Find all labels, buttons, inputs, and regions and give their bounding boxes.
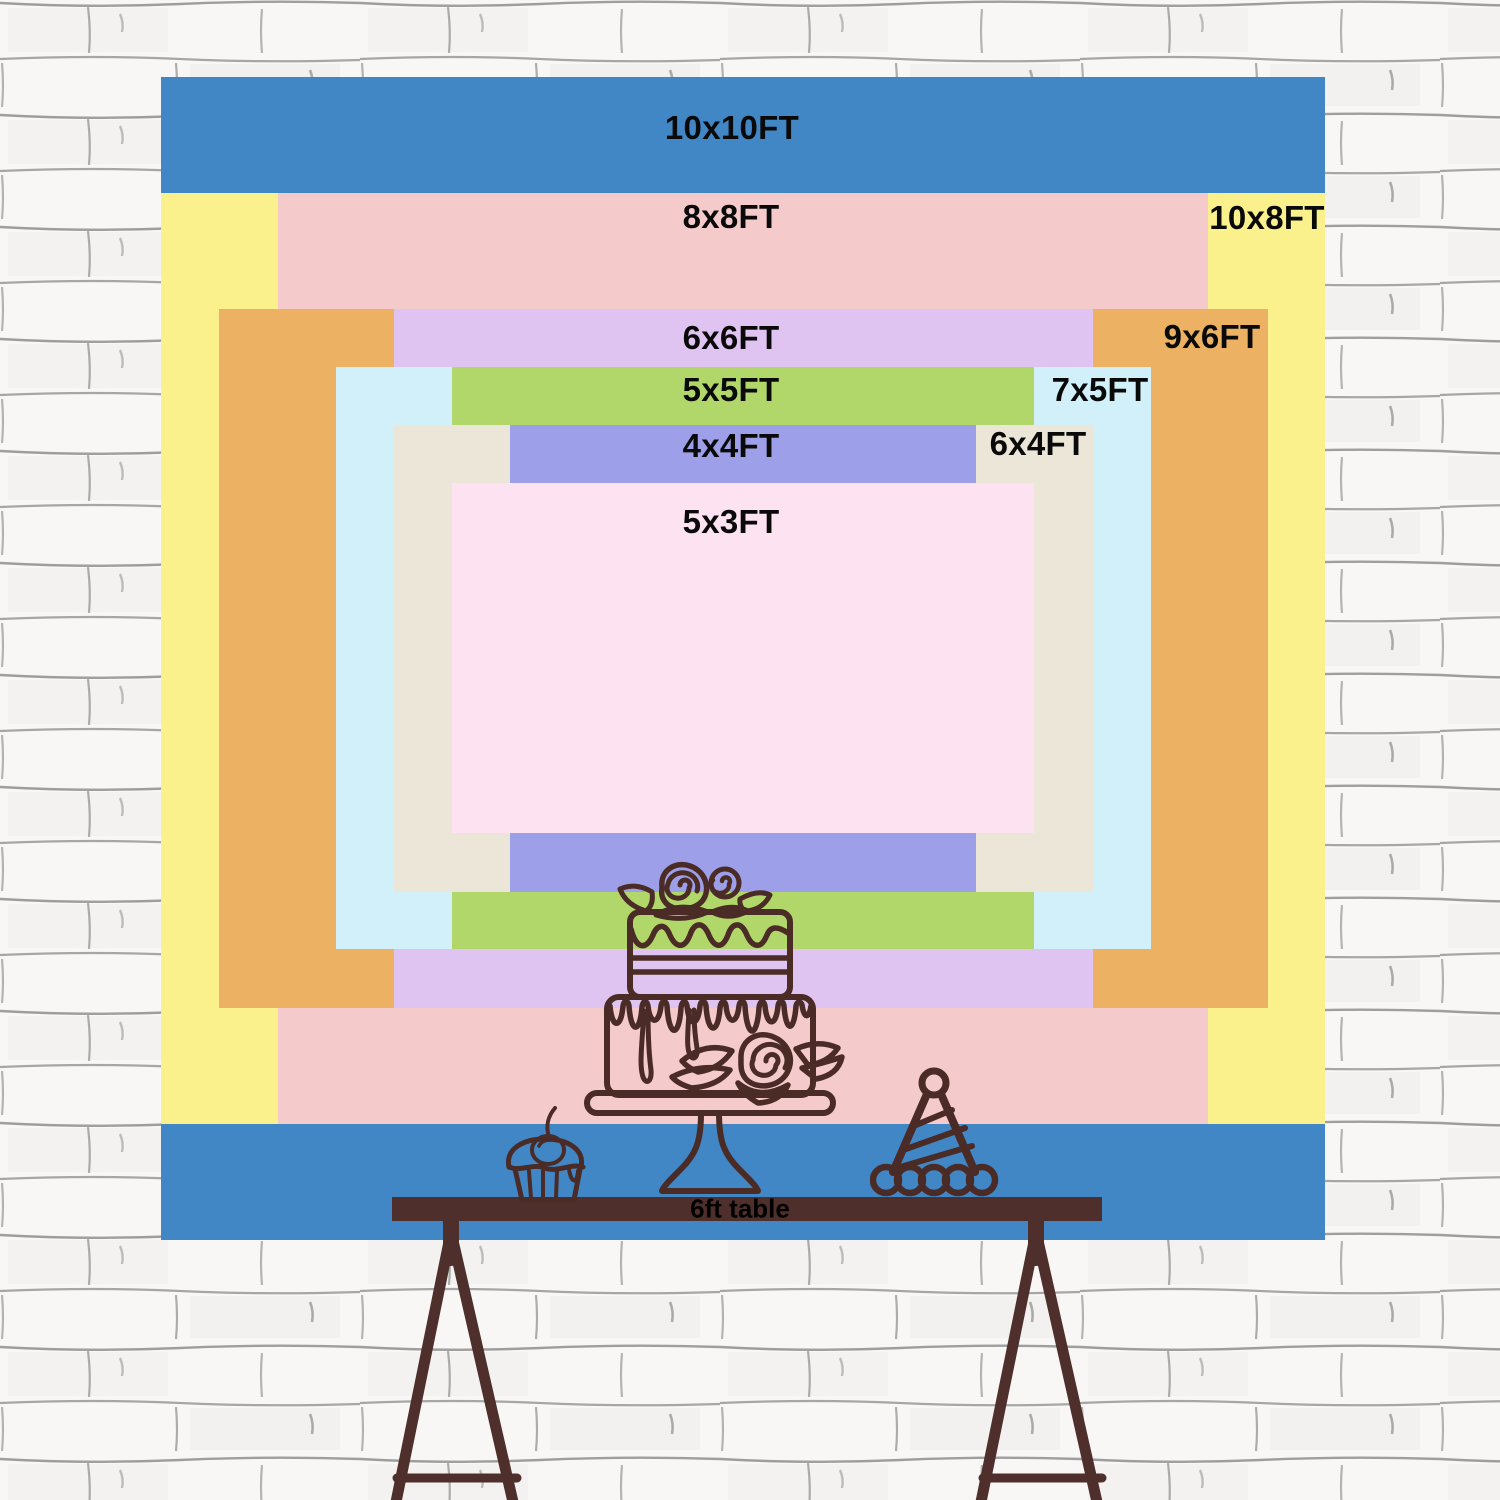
size-label-6x4ft: 6x4FT	[990, 425, 1087, 463]
size-label-9x6ft: 9x6FT	[1164, 318, 1261, 356]
size-label-6x6ft: 6x6FT	[683, 319, 780, 357]
table-label: 6ft table	[690, 1194, 790, 1225]
backdrop-size-chart: 10x10FT 10x8FT 8x8FT 9x6FT 6x6FT 7x5FT 5…	[0, 0, 1500, 1500]
size-label-10x10ft: 10x10FT	[665, 109, 799, 147]
size-label-7x5ft: 7x5FT	[1052, 371, 1149, 409]
size-label-5x3ft: 5x3FT	[683, 503, 780, 541]
size-label-4x4ft: 4x4FT	[683, 427, 780, 465]
size-label-10x8ft: 10x8FT	[1209, 199, 1325, 237]
size-label-5x5ft: 5x5FT	[683, 371, 780, 409]
size-label-8x8ft: 8x8FT	[683, 198, 780, 236]
